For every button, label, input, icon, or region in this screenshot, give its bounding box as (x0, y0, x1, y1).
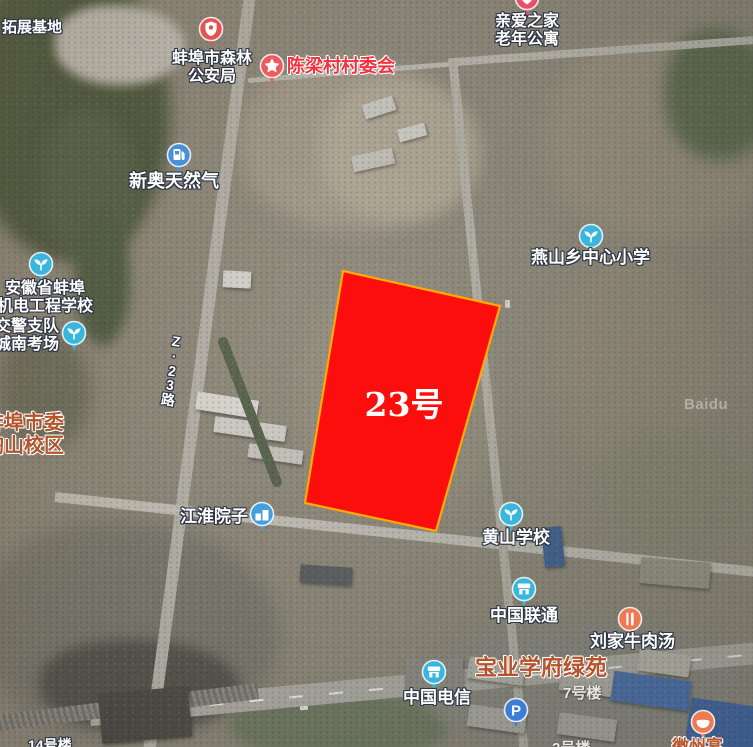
label-baoye-xuefu-lvyuan[interactable]: 宝业学府绿苑 (475, 656, 607, 681)
label-jiaojing-zhidui[interactable]: 交警支队城南考场 (0, 318, 59, 354)
label-qinai-zhijia[interactable]: 亲爱之家老年公寓 (495, 13, 559, 49)
label-huangshan-xuexiao-line: 黄山学校 (482, 528, 550, 547)
label-baoye-xuefu-lvyuan-line: 宝业学府绿苑 (475, 656, 607, 681)
label-shiwei-xiaoqu-line: 陶山校区 (0, 435, 64, 458)
label-senlin-gonganju-line: 蚌埠市森林 (172, 50, 252, 68)
poi-label-layer: 拓展基地蚌埠市森林公安局陈梁村村委会亲爱之家老年公寓新奥天然气安徽省蚌埠机电工程… (0, 0, 753, 747)
label-14-haolou-line: 14号楼 (28, 738, 72, 747)
label-road-z23-line: 路 (160, 392, 176, 409)
label-huizhouyan[interactable]: 徽州宴 (672, 737, 723, 747)
label-senlin-gonganju[interactable]: 蚌埠市森林公安局 (172, 50, 252, 86)
label-7-haolou[interactable]: 7号楼 (563, 686, 601, 703)
label-zhongguo-liantong-line: 中国联通 (490, 606, 558, 625)
satellite-map[interactable]: 23号 P 拓展基地蚌埠市森林公安局陈梁村村委会亲爱之家老年公寓新奥天然气安徽省… (0, 0, 753, 747)
label-road-z23: Z·23路 (160, 333, 184, 408)
label-jidian-gongcheng-xuexiao-line: 机电工程学校 (0, 298, 93, 316)
label-xinao-tianranqi[interactable]: 新奥天然气 (129, 171, 219, 191)
label-tuozhan-jidi[interactable]: 拓展基地 (2, 20, 62, 37)
baidu-watermark: Baidu (684, 396, 728, 413)
label-2-haolou[interactable]: 2号楼 (552, 741, 590, 747)
label-chenliangcun-cunweihui-line: 陈梁村村委会 (287, 56, 395, 76)
label-yanshan-xiaoxue[interactable]: 燕山乡中心小学 (531, 248, 650, 267)
label-qinai-zhijia-line: 亲爱之家 (495, 13, 559, 31)
label-chenliangcun-cunweihui[interactable]: 陈梁村村委会 (287, 56, 395, 76)
label-jidian-gongcheng-xuexiao[interactable]: 安徽省蚌埠机电工程学校 (0, 280, 93, 316)
label-zhongguo-dianxin[interactable]: 中国电信 (403, 688, 471, 707)
label-zhongguo-liantong[interactable]: 中国联通 (490, 606, 558, 625)
label-liujia-niuroutang-line: 刘家牛肉汤 (590, 632, 675, 651)
label-jidian-gongcheng-xuexiao-line: 安徽省蚌埠 (0, 280, 93, 298)
label-senlin-gonganju-line: 公安局 (172, 68, 252, 86)
label-huangshan-xuexiao[interactable]: 黄山学校 (482, 528, 550, 547)
label-jiaojing-zhidui-line: 交警支队 (0, 318, 59, 336)
label-jianghuai-yuanzi[interactable]: 江淮院子 (180, 507, 248, 526)
label-liujia-niuroutang[interactable]: 刘家牛肉汤 (590, 632, 675, 651)
label-shiwei-xiaoqu[interactable]: 蚌埠市委陶山校区 (0, 412, 64, 457)
label-7-haolou-line: 7号楼 (563, 686, 601, 703)
label-xinao-tianranqi-line: 新奥天然气 (129, 171, 219, 191)
label-huizhouyan-line: 徽州宴 (672, 737, 723, 747)
label-jiaojing-zhidui-line: 城南考场 (0, 336, 59, 354)
label-zhongguo-dianxin-line: 中国电信 (403, 688, 471, 707)
label-tuozhan-jidi-line: 拓展基地 (2, 20, 62, 37)
label-shiwei-xiaoqu-line: 蚌埠市委 (0, 412, 64, 435)
label-2-haolou-line: 2号楼 (552, 741, 590, 747)
label-jianghuai-yuanzi-line: 江淮院子 (180, 507, 248, 526)
label-qinai-zhijia-line: 老年公寓 (495, 31, 559, 49)
label-14-haolou[interactable]: 14号楼 (28, 738, 72, 747)
label-yanshan-xiaoxue-line: 燕山乡中心小学 (531, 248, 650, 267)
